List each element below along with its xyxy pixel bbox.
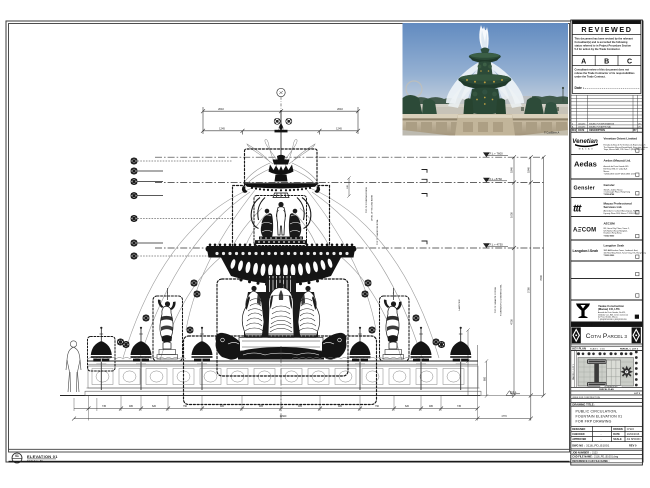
svg-text:(Macau) CO, LTD.: (Macau) CO, LTD. [598,307,620,311]
svg-text:KEY PLAN: KEY PLAN [572,347,586,351]
svg-text:880: 880 [484,376,487,381]
svg-text:SCALE 1 : 2 000: SCALE 1 : 2 000 [590,348,606,351]
svg-text:This document has been revised: This document has been revised by the re… [575,37,633,41]
svg-text:JOB NUMBER :: JOB NUMBER : [572,451,591,454]
svg-text:T 2830 3500: T 2830 3500 [604,255,615,257]
svg-text:T 2599.8788: T 2599.8788 [604,194,615,196]
svg-text:1840: 1840 [510,167,514,173]
svg-text:1245: 1245 [336,126,342,130]
svg-text:DESIGNED: DESIGNED [572,428,585,431]
svg-text:1840: 1840 [526,167,530,173]
svg-text:620: 620 [405,405,410,408]
svg-text:REV: REV [572,130,577,132]
svg-text:T (853) 2833 1113 F (853) 28: T (853) 2833 1113 F (853) 2833 1223 [604,173,635,175]
svg-text:B: B [604,58,609,65]
svg-text:CHECKED: CHECKED [572,433,585,436]
svg-text:ISSUED FOR INFORMATION: ISSUED FOR INFORMATION [589,122,615,125]
svg-text:CAD FILE NAME :: CAD FILE NAME : [572,456,593,459]
svg-text:DRAWING TITLE:: DRAWING TITLE: [572,402,594,406]
svg-text:T 3922 9000: T 3922 9000 [604,235,615,237]
svg-text:5760: 5760 [526,287,530,293]
svg-text:TOP OF FOUNTAIN FINISH: TOP OF FOUNTAIN FINISH [365,186,368,213]
svg-text:C: C [627,58,632,65]
svg-text:1030: 1030 [510,212,514,218]
svg-text:480: 480 [129,405,134,408]
svg-text:F.F.L + 7600: F.F.L + 7600 [488,152,504,156]
svg-text:DESCRIPTION: DESCRIPTION [589,130,605,132]
svg-text:3118_PD_B1001.dwg: 3118_PD_B1001.dwg [594,456,619,459]
svg-text:745: 745 [457,405,462,408]
svg-text:4730: 4730 [510,319,514,325]
svg-text:TOP OF GADROON BOWL: TOP OF GADROON BOWL [376,218,379,245]
svg-text:COTAI PARCEL 3: COTAI PARCEL 3 [586,333,628,340]
svg-text:920: 920 [220,405,225,408]
svg-text:ELEVATION 01: ELEVATION 01 [27,454,58,459]
svg-text:Aedas: Aedas [574,160,597,169]
svg-text:15/04/16: 15/04/16 [578,127,585,129]
svg-text:10/04/2016: 10/04/2016 [627,433,640,436]
svg-text:T. (853)28705158 F. (853)287: T. (853)28705158 F. (853)28705159 [598,319,627,321]
svg-text:Aedas (Macau) Ltd.: Aedas (Macau) Ltd. [604,159,632,163]
svg-text:PARCEL 1, LOT 1: PARCEL 1, LOT 1 [572,363,575,380]
svg-text:AECOM: AECOM [604,222,616,226]
svg-text:745: 745 [102,405,107,408]
svg-text:SCALE: SCALE [613,438,622,441]
svg-text:620: 620 [152,405,157,408]
svg-text:under the Trade Contract.: under the Trade Contract. [575,74,606,78]
svg-text:F.F.L: F.F.L [511,390,517,394]
svg-text:0: 0 [572,123,573,125]
svg-text:100 How Ming Street, Kwun Tong: 100 How Ming Street, Kwun Tong, Kln, Hon… [604,251,646,254]
svg-text:DWG NO :: DWG NO : [572,443,585,447]
svg-text:905: 905 [259,405,264,408]
svg-text:APPROVED: APPROVED [572,438,586,441]
svg-text:REV 0: REV 0 [629,443,637,447]
svg-text:LAMP PIER: LAMP PIER [458,299,461,311]
svg-text:REVIEWED: REVIEWED [581,25,632,34]
svg-text:3123: 3123 [592,451,598,454]
svg-text:DO NOT SCALE DRAWING. VERIFY A: DO NOT SCALE DRAWING. VERIFY ALL DIMENSI… [575,21,638,24]
svg-text:FOR FRP DRAWING: FOR FRP DRAWING [576,419,612,423]
svg-text:DATE: DATE [613,433,620,436]
svg-text:10/04/16: 10/04/16 [578,123,585,125]
svg-text:920: 920 [338,405,343,408]
svg-text:905: 905 [298,405,303,408]
svg-text:Venetian Orient Limited: Venetian Orient Limited [604,137,638,141]
svg-text:Langdon&Seah: Langdon&Seah [573,249,599,253]
svg-text:PARCEL 1, LOT 2: PARCEL 1, LOT 2 [620,348,639,351]
svg-text:FOUNTAIN ELEVATION 01: FOUNTAIN ELEVATION 01 [576,414,623,418]
svg-text:DATE: DATE [578,129,585,132]
svg-text:M A C A O: M A C A O [579,148,594,151]
svg-text:Dynasty Plaza 13/F, Macau T: Dynasty Plaza 13/F, Macau T 2870 3218 [604,212,638,215]
svg-text:3118_PD_B1001: 3118_PD_B1001 [586,444,610,448]
svg-text:LEVEL OF SECOND BASIN: LEVEL OF SECOND BASIN [371,194,374,221]
svg-text:5.4 for action by the Trade Co: 5.4 for action by the Trade Contractor. [575,47,621,51]
svg-text:relieve the Trade Contractor o: relieve the Trade Contractor of its resp… [575,71,636,75]
svg-text:BY: BY [634,130,638,132]
svg-text:FOUNTAIN POOL WATER LEVEL: FOUNTAIN POOL WATER LEVEL [500,283,503,315]
svg-text:Consultant review of this docu: Consultant review of this document does … [575,67,630,71]
svg-text:AΞCOM: AΞCOM [573,228,596,234]
svg-text:1245: 1245 [219,126,225,130]
svg-text:Langdon Seah: Langdon Seah [604,244,625,248]
svg-text:Gensler: Gensler [604,183,616,187]
svg-text:Venetian: Venetian [572,138,598,145]
svg-text:F.F.L + 4730: F.F.L + 4730 [488,242,504,246]
svg-text:1770: 1770 [501,415,507,418]
svg-text:2010: 2010 [218,107,224,111]
svg-text:ISSUED FOR APPROVAL: ISSUED FOR APPROVAL [589,126,611,129]
svg-text:PROJECT TITLE :: PROJECT TITLE : [573,323,595,327]
svg-text:DRAWN: DRAWN [613,428,623,431]
svg-text:status referred to in Project: status referred to in Project Procedure … [575,44,632,48]
svg-text:F.F.L +5760: F.F.L +5760 [488,177,503,181]
svg-text:REFERENCE CAD FILE NAME :: REFERENCE CAD FILE NAME : [572,460,609,463]
svg-text:480: 480 [429,405,434,408]
svg-text:Services Ltd.: Services Ltd. [604,205,623,209]
svg-text:TOP OF GRANITE COPING: TOP OF GRANITE COPING [494,286,497,313]
svg-text:SCALE 1 : 50: SCALE 1 : 50 [27,459,43,463]
svg-text:ISSUE FOR CONSTRUCTION: ISSUE FOR CONSTRUCTION [572,397,600,399]
svg-text:2010: 2010 [337,107,343,111]
svg-text:7600: 7600 [539,275,543,281]
svg-text:Gensler: Gensler [574,186,596,192]
svg-text:PUBLIC CIRCULATION,: PUBLIC CIRCULATION, [576,409,618,413]
svg-text:Date :: Date : [575,86,584,90]
svg-text:Consultant(s) and is accorded: Consultant(s) and is accorded the follow… [575,40,628,44]
svg-text:01: 01 [15,454,19,458]
svg-text:CHAO: CHAO [627,428,634,431]
svg-text:AS SHOWN: AS SHOWN [627,438,641,441]
svg-text:Kowloon, Hong Kong: Kowloon, Hong Kong [604,233,622,235]
svg-text:790: 790 [375,405,380,408]
svg-text:A: A [581,58,586,65]
svg-text:790: 790 [183,405,188,408]
svg-text:© CoolBiere.A: © CoolBiere.A [544,132,560,135]
